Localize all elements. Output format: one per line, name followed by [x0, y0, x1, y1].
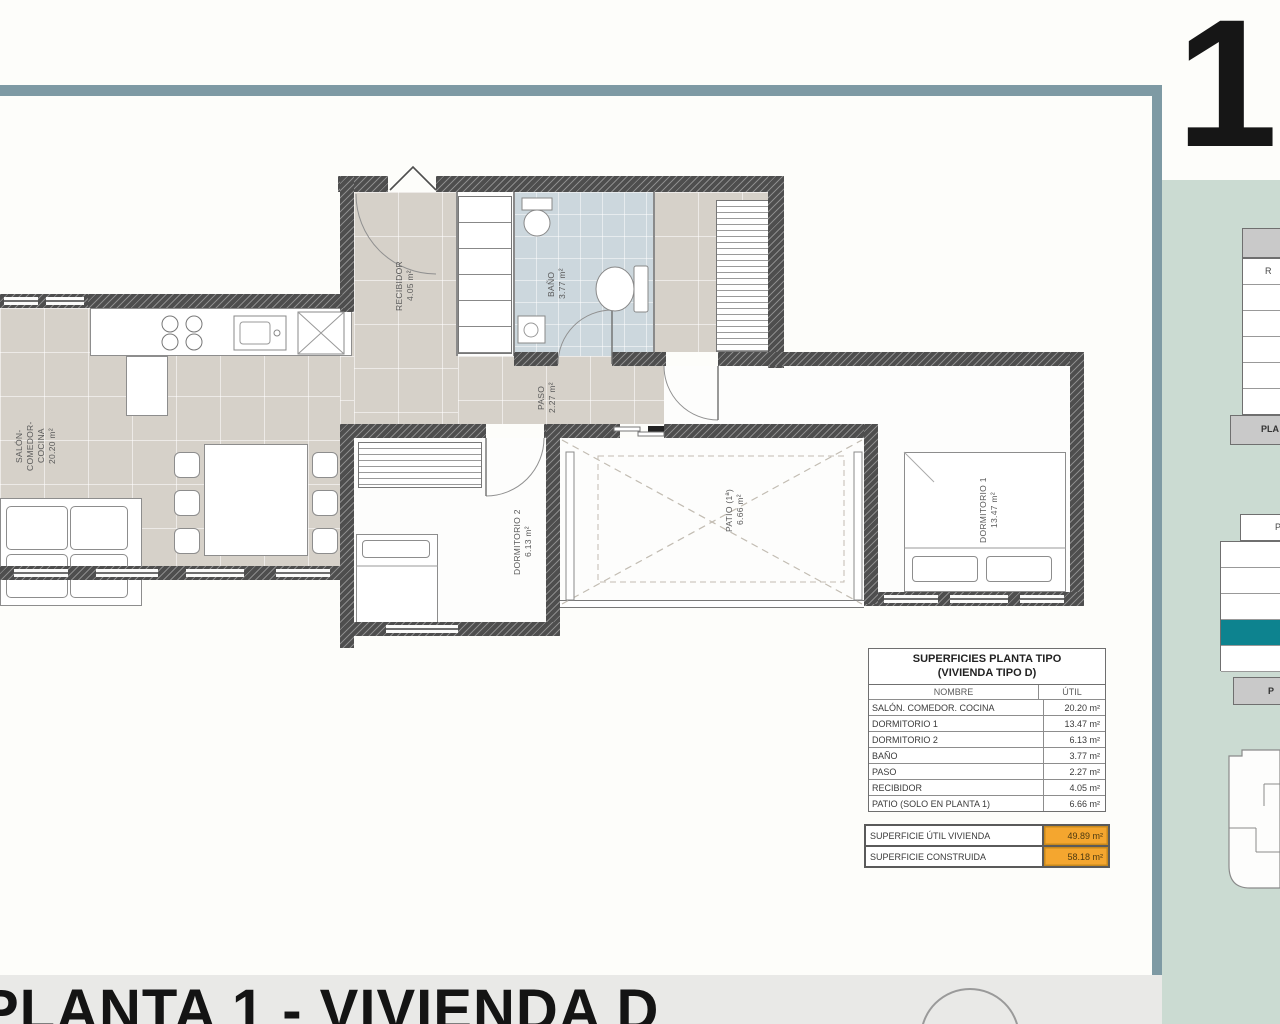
sofa-cushion	[70, 506, 128, 550]
wall	[718, 352, 1084, 366]
chair	[174, 490, 200, 516]
table-row: BAÑO 3.77 m²	[869, 748, 1105, 764]
sidebar-table-row	[1243, 285, 1280, 311]
wall	[864, 424, 878, 604]
room-label-dormitorio1: DORMITORIO 1 13.47 m²	[978, 454, 1004, 566]
areas-table-header: NOMBRE ÚTIL	[869, 685, 1105, 700]
partition-line	[513, 192, 515, 356]
room-label-bano: BAÑO 3.77 m²	[546, 238, 572, 330]
col-header-nombre: NOMBRE	[869, 685, 1038, 699]
sidebar-table-row	[1243, 363, 1280, 389]
drawing-sheet: SALÓN- COMEDOR- COCINA 20.20 m² RECIBIDO…	[0, 0, 1280, 1024]
wardrobe-dormitorio2	[358, 442, 482, 488]
chair	[174, 528, 200, 554]
window	[4, 297, 38, 305]
floor-stack-row	[1221, 542, 1280, 568]
wall	[1070, 352, 1084, 606]
floor-stack-header: P	[1240, 514, 1280, 541]
window	[884, 595, 938, 603]
floor-stack-row	[1221, 646, 1280, 672]
row-name: PATIO (SOLO EN PLANTA 1)	[869, 796, 1043, 811]
window	[96, 569, 158, 577]
window	[1020, 595, 1064, 603]
partition-line	[456, 192, 458, 356]
table-row: SALÓN. COMEDOR. COCINA 20.20 m²	[869, 700, 1105, 716]
wall	[340, 176, 354, 312]
total-value-highlight: 49.89 m²	[1042, 826, 1108, 845]
floor-stack	[1220, 541, 1280, 671]
sofa-cushion	[6, 506, 68, 550]
chair	[312, 528, 338, 554]
room-label-paso: PASO 2.27 m²	[536, 360, 562, 436]
patio-glazing	[560, 600, 864, 608]
row-name: RECIBIDOR	[869, 780, 1043, 795]
total-value-highlight: 58.18 m²	[1042, 847, 1108, 866]
table-row: PATIO (SOLO EN PLANTA 1) 6.66 m²	[869, 796, 1105, 811]
wall	[546, 424, 560, 622]
kitchen-peninsula	[126, 356, 168, 416]
row-util: 6.13 m²	[1043, 732, 1105, 747]
wardrobe-dormitorio1	[716, 200, 774, 352]
wall	[664, 424, 864, 438]
closet-shelves	[458, 196, 512, 354]
row-util: 20.20 m²	[1043, 700, 1105, 715]
table-row: DORMITORIO 1 13.47 m²	[869, 716, 1105, 732]
areas-table: SUPERFICIES PLANTA TIPO (VIVIENDA TIPO D…	[868, 648, 1106, 812]
table-row: RECIBIDOR 4.05 m²	[869, 780, 1105, 796]
col-header-util: ÚTIL	[1038, 685, 1105, 699]
floor-stack-footer: P	[1233, 677, 1280, 705]
pillow	[362, 540, 430, 558]
room-label-patio: PATIO (1ª) 6.66 m²	[724, 458, 750, 562]
sidebar-table-row	[1243, 389, 1280, 415]
wall	[88, 294, 354, 308]
total-row: SUPERFICIE ÚTIL VIVIENDA 49.89 m²	[866, 826, 1108, 847]
sidebar-table-body: R	[1242, 258, 1280, 415]
row-name: DORMITORIO 1	[869, 716, 1043, 731]
floor-stack-row	[1221, 594, 1280, 620]
wall	[560, 424, 620, 438]
page-number: 1	[1170, 0, 1280, 174]
kitchen-counter	[90, 308, 352, 356]
chair	[312, 490, 338, 516]
sidebar-table-row: R	[1243, 259, 1280, 285]
table-row: PASO 2.27 m²	[869, 764, 1105, 780]
wall-stub	[648, 426, 664, 436]
pillow	[912, 556, 978, 582]
room-label-recibidor: RECIBIDOR 4.05 m²	[394, 238, 420, 334]
row-name: SALÓN. COMEDOR. COCINA	[869, 700, 1043, 715]
floor-patio	[560, 438, 864, 600]
row-util: 2.27 m²	[1043, 764, 1105, 779]
row-name: PASO	[869, 764, 1043, 779]
floor-stack-row-current	[1221, 620, 1280, 646]
wall	[768, 176, 784, 368]
room-label-dormitorio2: DORMITORIO 2 6.13 m²	[512, 486, 538, 598]
window	[276, 569, 330, 577]
chair	[312, 452, 338, 478]
floor-stack-row	[1221, 568, 1280, 594]
total-name: SUPERFICIE CONSTRUIDA	[866, 847, 1042, 866]
dining-table	[204, 444, 308, 556]
row-util: 13.47 m²	[1043, 716, 1105, 731]
floor-bano	[514, 192, 654, 356]
areas-table-title-line1: SUPERFICIES PLANTA TIPO	[871, 652, 1103, 666]
window	[14, 569, 68, 577]
row-name: BAÑO	[869, 748, 1043, 763]
window	[950, 595, 1008, 603]
window	[186, 569, 244, 577]
sidebar-table-footer: PLA	[1230, 415, 1280, 445]
areas-table-title-line2: (VIVIENDA TIPO D)	[871, 666, 1103, 680]
sidebar-table-header	[1242, 228, 1280, 258]
table-row: DORMITORIO 2 6.13 m²	[869, 732, 1105, 748]
chair	[174, 452, 200, 478]
window	[386, 625, 458, 633]
window	[46, 297, 84, 305]
total-name: SUPERFICIE ÚTIL VIVIENDA	[866, 826, 1042, 845]
row-util: 6.66 m²	[1043, 796, 1105, 811]
wall	[340, 424, 486, 438]
areas-table-title: SUPERFICIES PLANTA TIPO (VIVIENDA TIPO D…	[869, 649, 1105, 685]
row-name: DORMITORIO 2	[869, 732, 1043, 747]
partition-line	[653, 192, 655, 358]
sidebar-table-row	[1243, 337, 1280, 363]
accent-rule-horizontal	[0, 85, 1162, 96]
wall	[612, 352, 654, 366]
room-label-salon: SALÓN- COMEDOR- COCINA 20.20 m²	[14, 384, 64, 508]
wall	[654, 352, 666, 366]
wall	[436, 176, 784, 192]
sheet-title: PLANTA 1 - VIVIENDA D	[0, 982, 659, 1024]
areas-totals: SUPERFICIE ÚTIL VIVIENDA 49.89 m² SUPERF…	[864, 824, 1110, 868]
wall	[340, 424, 354, 648]
sidebar-table-row	[1243, 311, 1280, 337]
accent-rule-vertical	[1152, 85, 1162, 1024]
entrance-door-leaf	[390, 167, 436, 190]
total-row: SUPERFICIE CONSTRUIDA 58.18 m²	[866, 847, 1108, 866]
row-util: 3.77 m²	[1043, 748, 1105, 763]
row-util: 4.05 m²	[1043, 780, 1105, 795]
